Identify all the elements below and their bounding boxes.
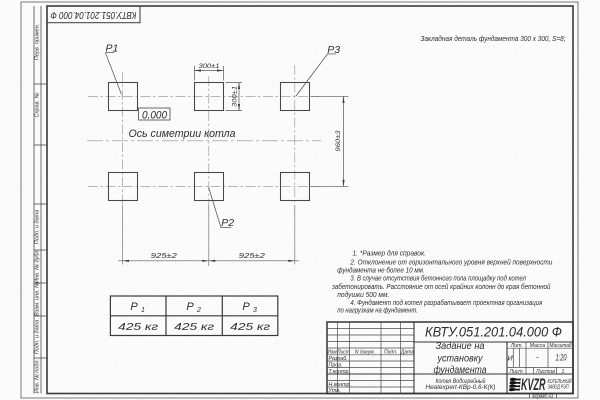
svg-text:425 кг: 425 кг bbox=[118, 321, 158, 333]
svg-text:1:20: 1:20 bbox=[556, 353, 567, 363]
svg-text:Н.контр.: Н.контр. bbox=[329, 382, 351, 388]
svg-text:И: И bbox=[507, 353, 513, 362]
svg-text:3: 3 bbox=[253, 307, 257, 314]
svg-text:KVZR: KVZR bbox=[521, 376, 546, 394]
svg-text:Разраб.: Разраб. bbox=[329, 356, 348, 362]
svg-text:забетонировать. Расстояние от: забетонировать. Расстояние от осей крайн… bbox=[331, 283, 550, 291]
svg-text:Дата: Дата bbox=[400, 350, 414, 356]
svg-text:925±2: 925±2 bbox=[151, 251, 178, 260]
svg-text:Инв. № дубл.: Инв. № дубл. bbox=[35, 249, 41, 283]
svg-text:по нагрузкам на фундамент.: по нагрузкам на фундамент. bbox=[337, 307, 418, 315]
svg-text:300±1: 300±1 bbox=[199, 63, 221, 70]
svg-text:Р: Р bbox=[186, 301, 194, 313]
svg-text:Перв. примен.: Перв. примен. bbox=[35, 24, 41, 61]
svg-text:Т.контр.: Т.контр. bbox=[329, 369, 350, 375]
svg-text:Р: Р bbox=[242, 301, 250, 313]
svg-text:425 кг: 425 кг bbox=[174, 321, 214, 333]
svg-text:300±1: 300±1 bbox=[231, 85, 238, 107]
svg-text:Масштаб: Масштаб bbox=[550, 343, 573, 349]
svg-text:Р: Р bbox=[130, 301, 138, 313]
svg-text:Формат А3: Формат А3 bbox=[532, 394, 553, 400]
svg-text:КВТУ.051.201.04.000 Ф: КВТУ.051.201.04.000 Ф bbox=[50, 9, 136, 20]
svg-text:Листов: Листов bbox=[535, 369, 555, 375]
svg-text:Задание на: Задание на bbox=[436, 341, 485, 352]
svg-text:-: - bbox=[536, 353, 539, 362]
svg-text:Ось симетрии котла: Ось симетрии котла bbox=[129, 128, 236, 140]
svg-text:Подп. и дата: Подп. и дата bbox=[35, 210, 41, 244]
svg-text:Лит.: Лит. bbox=[510, 343, 523, 349]
svg-text:Утв.: Утв. bbox=[329, 388, 341, 394]
svg-text:фундамента: фундамента bbox=[434, 364, 487, 376]
svg-text:425 кг: 425 кг bbox=[230, 321, 270, 333]
svg-text:фундамента не более 10 мм.: фундамента не более 10 мм. bbox=[337, 267, 424, 275]
svg-text:Взам. инв. №: Взам. инв. № bbox=[35, 282, 41, 316]
svg-text:960±3: 960±3 bbox=[335, 130, 342, 152]
svg-text:Лист: Лист bbox=[508, 369, 523, 375]
svg-text:1: 1 bbox=[562, 369, 565, 375]
svg-text:Масса: Масса bbox=[530, 343, 545, 349]
svg-text:N докум.: N докум. bbox=[355, 350, 375, 356]
svg-text:925±2: 925±2 bbox=[239, 251, 266, 260]
svg-text:0.000: 0.000 bbox=[142, 110, 168, 122]
svg-text:Подп.: Подп. bbox=[384, 350, 397, 356]
svg-text:Пров.: Пров. bbox=[329, 362, 343, 368]
svg-text:2: 2 bbox=[196, 307, 201, 314]
svg-text:подушки 500 мм.: подушки 500 мм. bbox=[337, 291, 389, 299]
svg-text:Heatexpert-КВр-0,6-К(К): Heatexpert-КВр-0,6-К(К) bbox=[426, 384, 496, 391]
svg-text:4. Фундамент под котел разраба: 4. Фундамент под котел разрабатывает про… bbox=[350, 299, 542, 307]
svg-text:3. В случае отсутствия бетонно: 3. В случае отсутствия бетонного пола пл… bbox=[350, 275, 526, 283]
svg-text:1. *Размер для справок.: 1. *Размер для справок. bbox=[353, 249, 426, 257]
svg-text:Изм: Изм bbox=[327, 350, 337, 356]
svg-text:установку: установку bbox=[437, 353, 484, 364]
svg-text:Справ. №: Справ. № bbox=[35, 92, 41, 117]
svg-text:Закладная деталь фундамента 3: Закладная деталь фундамента 300 х 300, S… bbox=[421, 34, 566, 43]
svg-text:Подп. и дата: Подп. и дата bbox=[35, 320, 41, 354]
svg-text:2. Отклонение от горизонтально: 2. Отклонение от горизонтального уровня … bbox=[349, 258, 552, 266]
svg-text:1: 1 bbox=[141, 307, 145, 314]
svg-text:Лист: Лист bbox=[336, 350, 350, 356]
svg-text:Инв. № подл.: Инв. № подл. bbox=[35, 359, 41, 393]
svg-text:ЗАВОД РЭП: ЗАВОД РЭП bbox=[548, 384, 569, 390]
svg-text:КВТУ.051.201.04.000 Ф: КВТУ.051.201.04.000 Ф bbox=[425, 324, 562, 339]
